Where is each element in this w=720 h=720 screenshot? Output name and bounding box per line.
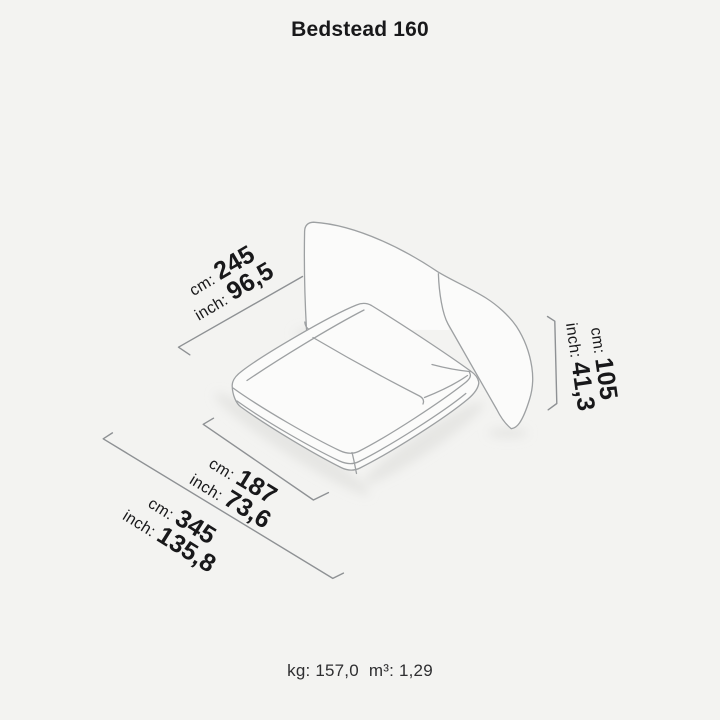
weight-pair: kg: 157,0 — [287, 661, 359, 680]
inch-unit-label: inch: — [562, 322, 584, 359]
volume-pair: m³: 1,29 — [369, 661, 433, 680]
dim-line-height — [548, 317, 557, 410]
weight-value: 157,0 — [315, 661, 359, 680]
volume-value: 1,29 — [399, 661, 433, 680]
weight-label: kg: — [287, 661, 310, 680]
diagram-stage: Bedstead 160 — [0, 0, 720, 720]
weight-volume-caption: kg: 157,0m³: 1,29 — [0, 661, 720, 681]
volume-label: m³: — [369, 661, 394, 680]
